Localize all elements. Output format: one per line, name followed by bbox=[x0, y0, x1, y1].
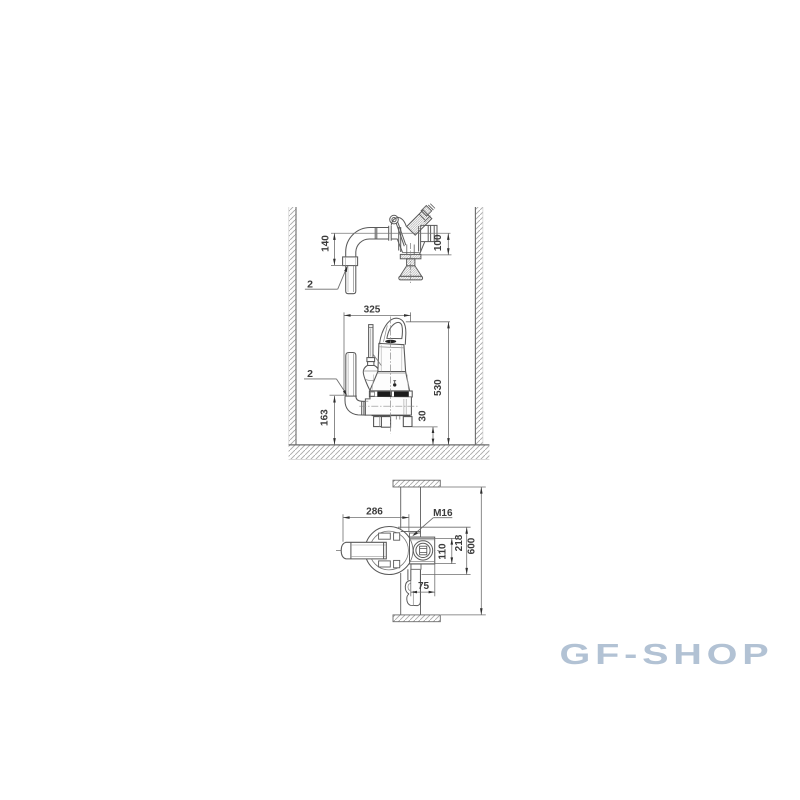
svg-text:140: 140 bbox=[320, 235, 331, 252]
svg-text:GF-SHOP: GF-SHOP bbox=[560, 639, 774, 671]
svg-text:600: 600 bbox=[466, 537, 477, 554]
svg-text:100: 100 bbox=[433, 234, 444, 251]
svg-text:286: 286 bbox=[366, 507, 383, 518]
svg-text:163: 163 bbox=[319, 409, 330, 426]
svg-text:110: 110 bbox=[437, 543, 448, 560]
svg-text:30: 30 bbox=[418, 410, 429, 422]
svg-text:530: 530 bbox=[433, 379, 444, 396]
svg-text:75: 75 bbox=[418, 581, 430, 592]
svg-text:2: 2 bbox=[307, 368, 313, 380]
svg-text:218: 218 bbox=[454, 534, 465, 551]
svg-text:325: 325 bbox=[364, 305, 381, 316]
